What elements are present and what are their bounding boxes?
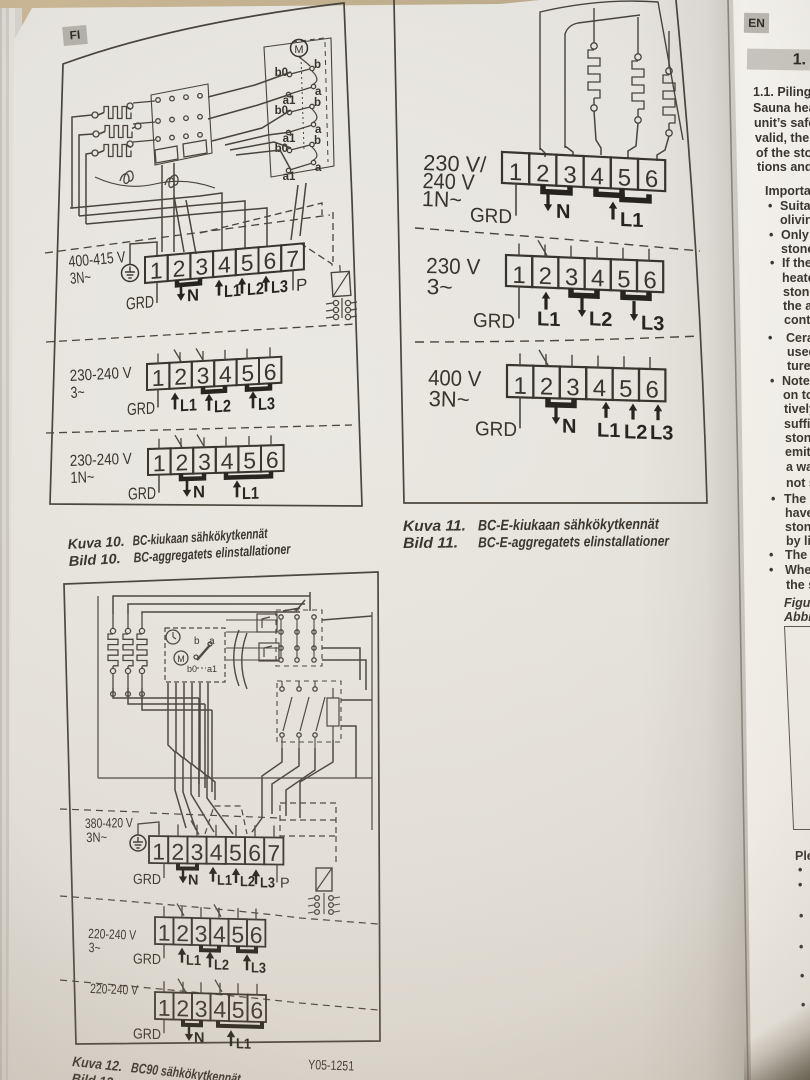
svg-text:5: 5 (617, 266, 630, 294)
svg-text:2: 2 (173, 255, 186, 282)
svg-text:L1: L1 (180, 395, 197, 415)
svg-text:L1: L1 (217, 873, 232, 889)
svg-text:5: 5 (243, 447, 256, 473)
svg-text:1N~: 1N~ (422, 186, 463, 212)
svg-text:L2: L2 (589, 308, 612, 331)
svg-text:400-415 V: 400-415 V (68, 249, 127, 271)
svg-text:6: 6 (250, 997, 263, 1023)
svg-text:4: 4 (591, 163, 604, 191)
svg-text:M: M (177, 654, 185, 664)
svg-text:GRD: GRD (473, 310, 515, 334)
svg-text:GRD: GRD (475, 418, 517, 441)
svg-text:6: 6 (250, 922, 263, 948)
svg-text:1: 1 (152, 839, 165, 865)
svg-text:3: 3 (198, 449, 211, 475)
svg-text:6: 6 (248, 840, 261, 866)
svg-text:L1: L1 (224, 281, 241, 301)
svg-text:5: 5 (241, 249, 254, 276)
svg-text:L2: L2 (214, 396, 231, 416)
svg-text:380-420 V: 380-420 V (85, 815, 133, 831)
svg-text:4: 4 (213, 921, 226, 947)
svg-text:5: 5 (241, 360, 254, 387)
svg-text:GRD: GRD (126, 292, 154, 313)
svg-text:4: 4 (221, 448, 234, 474)
svg-text:4: 4 (210, 839, 223, 865)
svg-text:3: 3 (563, 162, 576, 190)
svg-text:5: 5 (231, 921, 244, 947)
svg-text:b: b (314, 59, 321, 71)
svg-text:L1: L1 (620, 209, 643, 232)
svg-text:4: 4 (213, 996, 226, 1022)
svg-text:Bild 11.: Bild 11. (403, 535, 458, 552)
svg-text:a1: a1 (283, 171, 296, 183)
svg-text:P: P (296, 275, 307, 295)
svg-text:Bild 10.: Bild 10. (68, 550, 121, 569)
svg-text:N: N (193, 482, 205, 501)
svg-text:N: N (556, 201, 570, 224)
svg-text:Kuva 10.: Kuva 10. (67, 533, 125, 552)
svg-text:L3: L3 (641, 312, 664, 335)
svg-text:BC90 sähkökytkennät: BC90 sähkökytkennät (130, 1059, 242, 1080)
svg-text:GRD: GRD (133, 1026, 161, 1043)
svg-text:3: 3 (566, 374, 579, 401)
svg-text:GRD: GRD (128, 484, 156, 504)
svg-text:1: 1 (158, 920, 171, 946)
svg-text:GRD: GRD (470, 204, 512, 228)
svg-text:230-240 V: 230-240 V (70, 451, 133, 470)
svg-text:5: 5 (618, 164, 631, 192)
svg-text:2: 2 (174, 363, 187, 390)
svg-text:b: b (314, 135, 321, 147)
svg-text:2: 2 (540, 373, 553, 400)
svg-text:L2: L2 (214, 957, 229, 973)
svg-text:1: 1 (150, 257, 163, 284)
svg-text:3N~: 3N~ (428, 386, 470, 412)
svg-text:3N~: 3N~ (69, 269, 91, 288)
svg-text:M: M (294, 44, 303, 56)
svg-text:2: 2 (536, 160, 549, 188)
svg-text:1N~: 1N~ (70, 469, 95, 487)
svg-text:L1: L1 (597, 420, 620, 443)
svg-text:1: 1 (509, 159, 522, 187)
svg-text:6: 6 (646, 376, 659, 403)
svg-text:2: 2 (171, 839, 184, 865)
svg-text:1: 1 (152, 365, 165, 392)
svg-text:6: 6 (645, 166, 658, 194)
svg-text:L2: L2 (240, 874, 255, 890)
svg-text:1: 1 (514, 373, 527, 400)
svg-text:GRD: GRD (133, 951, 161, 968)
svg-text:a1: a1 (207, 664, 217, 674)
svg-text:b: b (314, 97, 321, 109)
svg-text:L2: L2 (624, 421, 647, 444)
svg-text:6: 6 (643, 267, 656, 295)
svg-text:220-240 V: 220-240 V (90, 981, 138, 998)
svg-text:L3: L3 (258, 394, 275, 414)
svg-text:Kuva 11.: Kuva 11. (403, 517, 466, 535)
svg-text:6: 6 (264, 247, 277, 274)
svg-text:Y05-1251: Y05-1251 (308, 1057, 354, 1074)
svg-text:P: P (280, 876, 290, 892)
svg-text:7: 7 (286, 245, 299, 272)
svg-text:GRD: GRD (127, 399, 155, 419)
svg-text:3: 3 (195, 253, 208, 280)
svg-text:3N~: 3N~ (86, 830, 107, 845)
svg-text:N: N (562, 416, 576, 438)
svg-text:L2: L2 (247, 279, 264, 299)
svg-text:3: 3 (195, 996, 208, 1022)
svg-text:7: 7 (267, 840, 280, 866)
svg-text:N: N (188, 872, 198, 888)
svg-text:3: 3 (565, 264, 578, 292)
svg-text:GRD: GRD (133, 872, 161, 888)
svg-text:4: 4 (219, 361, 232, 388)
svg-text:2: 2 (176, 449, 189, 475)
svg-text:L1: L1 (242, 484, 259, 504)
svg-text:5: 5 (232, 997, 245, 1023)
svg-text:4: 4 (593, 375, 606, 402)
svg-text:4: 4 (218, 251, 231, 278)
svg-text:1: 1 (153, 450, 166, 476)
svg-text:3: 3 (191, 839, 204, 865)
svg-text:230-240 V: 230-240 V (69, 365, 132, 385)
svg-text:L1: L1 (186, 953, 201, 969)
svg-text:N: N (194, 1030, 204, 1046)
svg-text:L3: L3 (260, 875, 275, 891)
svg-text:L1: L1 (537, 308, 560, 331)
svg-text:4: 4 (591, 265, 604, 293)
svg-text:3: 3 (197, 362, 210, 389)
svg-text:6: 6 (266, 447, 279, 473)
svg-text:b: b (194, 636, 200, 647)
svg-text:L3: L3 (251, 960, 266, 976)
svg-text:3~: 3~ (88, 940, 101, 955)
svg-text:2: 2 (539, 263, 552, 291)
svg-text:3~: 3~ (70, 384, 85, 402)
svg-text:3: 3 (195, 920, 208, 946)
svg-text:5: 5 (229, 839, 242, 865)
svg-text:5: 5 (619, 376, 632, 403)
svg-text:N: N (187, 285, 199, 305)
svg-text:BC-E-kiukaan sähkökytkennät: BC-E-kiukaan sähkökytkennät (478, 516, 660, 535)
svg-text:2: 2 (176, 920, 189, 946)
svg-text:2: 2 (176, 995, 189, 1021)
svg-text:L3: L3 (650, 422, 673, 445)
svg-text:1: 1 (158, 995, 171, 1021)
svg-text:1: 1 (512, 262, 525, 290)
svg-text:a: a (315, 162, 322, 174)
svg-text:b0: b0 (187, 664, 197, 674)
svg-text:BC-E-aggregatets elinstallatio: BC-E-aggregatets elinstallationer (478, 534, 670, 552)
svg-text:6: 6 (264, 359, 277, 386)
svg-text:L1: L1 (236, 1036, 251, 1052)
svg-text:L3: L3 (271, 277, 288, 297)
svg-text:3~: 3~ (426, 274, 453, 300)
